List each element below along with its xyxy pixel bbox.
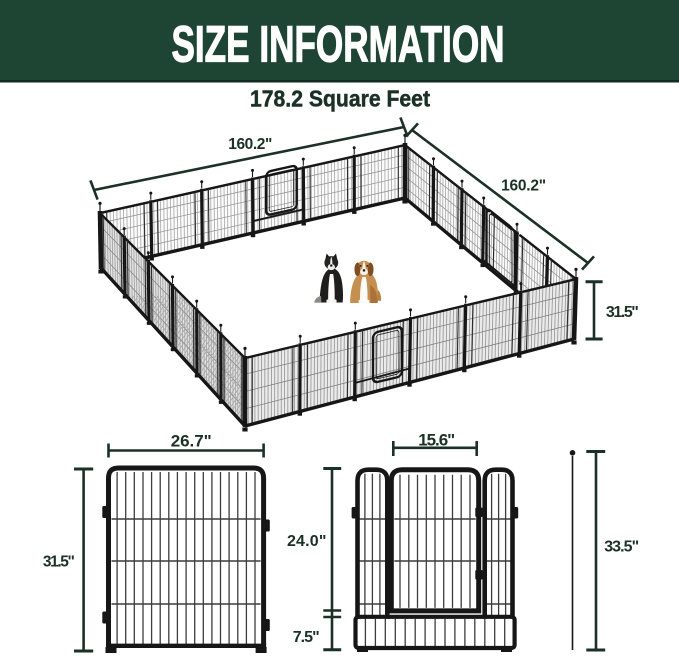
svg-text:160.2": 160.2" (501, 178, 546, 195)
svg-text:31.5": 31.5" (606, 304, 639, 321)
svg-text:15.6": 15.6" (418, 431, 455, 450)
svg-text:160.2": 160.2" (228, 136, 272, 153)
svg-text:SIZE INFORMATION: SIZE INFORMATION (172, 16, 505, 73)
svg-text:7.5": 7.5" (293, 629, 320, 646)
svg-text:24.0": 24.0" (287, 533, 327, 550)
svg-text:26.7": 26.7" (171, 431, 212, 450)
svg-text:178.2 Square Feet: 178.2 Square Feet (250, 86, 430, 112)
svg-text:33.5": 33.5" (604, 539, 639, 556)
svg-text:31.5": 31.5" (43, 554, 75, 571)
